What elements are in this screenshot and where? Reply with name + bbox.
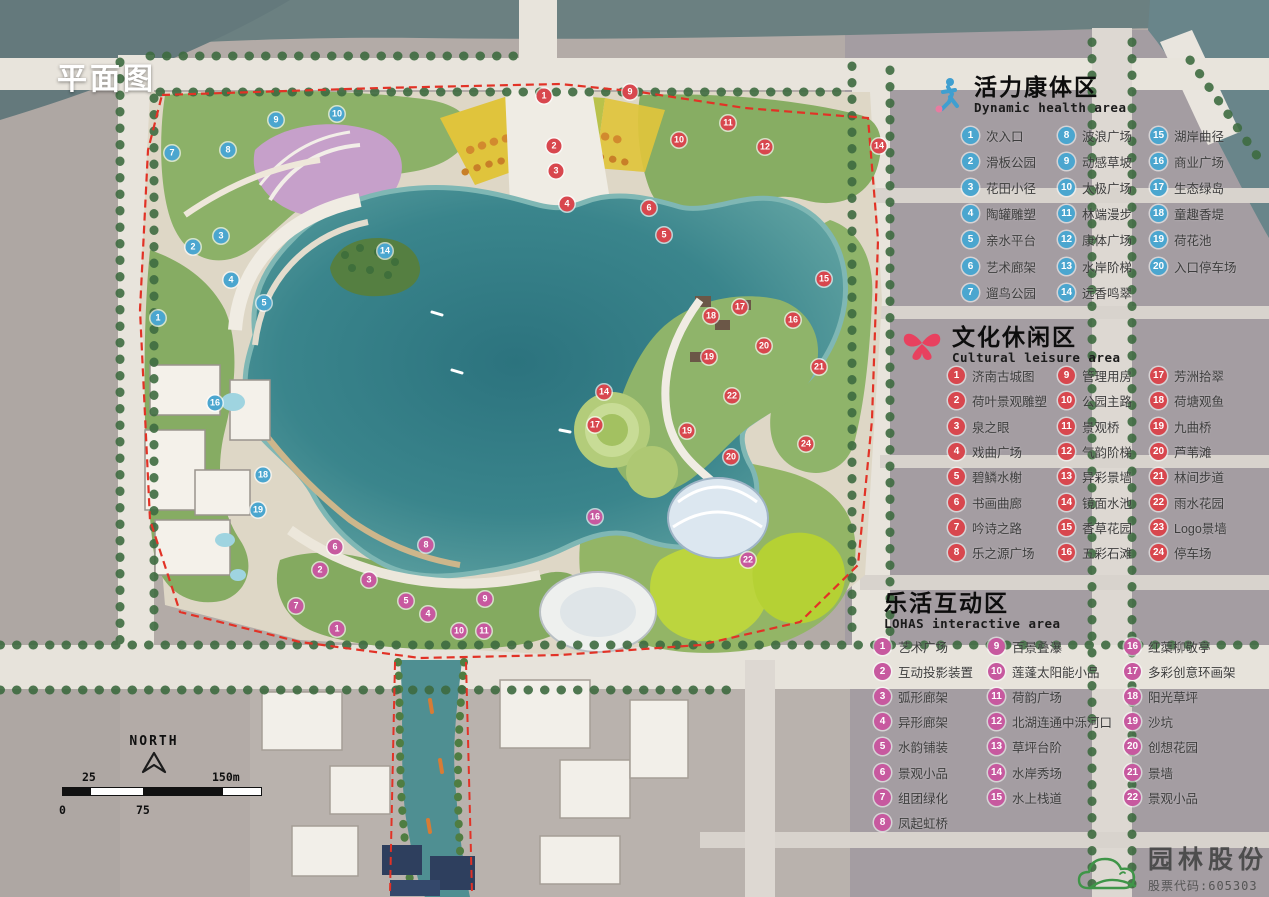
map-marker: 18 — [256, 468, 271, 483]
map-marker: 4 — [421, 607, 436, 622]
company-name: 园林股份 — [1148, 848, 1268, 873]
map-marker: 6 — [328, 540, 343, 555]
map-marker: 1 — [330, 622, 345, 637]
cloud-hill-logo-icon — [1076, 848, 1138, 894]
page-title: 平面图 — [57, 54, 156, 98]
south-vertical-street — [745, 660, 775, 897]
map-marker: 19 — [680, 424, 695, 439]
site-plan-map — [0, 0, 1269, 897]
terraced-lawn — [596, 414, 628, 446]
map-marker: 22 — [725, 389, 740, 404]
stadium-roof — [560, 587, 636, 637]
map-marker: 19 — [702, 350, 717, 365]
map-marker: 16 — [588, 510, 603, 525]
map-marker: 5 — [657, 228, 672, 243]
scale-label-150m: 150m — [212, 770, 240, 784]
map-marker: 9 — [623, 85, 638, 100]
map-marker: 11 — [477, 624, 492, 639]
map-marker: 12 — [758, 140, 773, 155]
company-logo: 园林股份 股票代码:605303 — [1076, 848, 1268, 894]
scale-bar: 25 150m 0 75 — [62, 770, 272, 820]
pool — [221, 393, 245, 411]
map-marker: 2 — [186, 240, 201, 255]
map-marker: 1 — [151, 311, 166, 326]
map-marker: 10 — [672, 133, 687, 148]
map-marker: 20 — [724, 450, 739, 465]
pool — [230, 569, 246, 581]
map-marker: 7 — [289, 599, 304, 614]
map-marker: 9 — [478, 592, 493, 607]
map-marker: 10 — [330, 107, 345, 122]
scale-label-0: 0 — [59, 803, 66, 817]
map-marker: 7 — [165, 146, 180, 161]
map-marker: 5 — [257, 296, 272, 311]
map-marker: 8 — [221, 143, 236, 158]
map-marker: 3 — [549, 164, 564, 179]
map-marker: 22 — [741, 553, 756, 568]
scale-label-75: 75 — [136, 803, 150, 817]
cross-street — [860, 575, 1269, 590]
master-plan-canvas: 平面图 活力康体区 Dynamic health area 1次入口2滑板公园3… — [0, 0, 1269, 897]
map-marker: 2 — [547, 139, 562, 154]
map-marker: 3 — [362, 573, 377, 588]
map-marker: 14 — [597, 385, 612, 400]
map-marker: 1 — [537, 89, 552, 104]
map-marker: 17 — [733, 300, 748, 315]
map-marker: 10 — [452, 624, 467, 639]
scale-label-25: 25 — [82, 770, 96, 784]
map-marker: 9 — [269, 113, 284, 128]
map-marker: 14 — [378, 244, 393, 259]
north-bridge-road — [519, 0, 557, 96]
map-marker: 11 — [721, 116, 736, 131]
map-marker: 21 — [812, 360, 827, 375]
map-marker: 16 — [208, 396, 223, 411]
map-marker: 19 — [251, 503, 266, 518]
map-marker: 5 — [399, 594, 414, 609]
map-marker: 18 — [704, 309, 719, 324]
north-label: NORTH — [124, 734, 184, 749]
scale-bar-segments — [62, 787, 262, 796]
cross-street — [860, 188, 1269, 203]
map-marker: 15 — [817, 272, 832, 287]
map-marker: 20 — [757, 339, 772, 354]
map-marker: 2 — [313, 563, 328, 578]
terraced-lawn — [626, 446, 678, 498]
map-marker: 8 — [419, 538, 434, 553]
map-marker: 16 — [786, 313, 801, 328]
cross-street — [880, 306, 1269, 319]
dome-building — [668, 478, 768, 558]
stock-ticker: 股票代码:605303 — [1148, 877, 1268, 894]
south-road — [0, 645, 1269, 689]
cross-street — [880, 455, 1269, 468]
map-marker: 17 — [588, 418, 603, 433]
map-marker: 3 — [214, 229, 229, 244]
map-marker: 4 — [224, 273, 239, 288]
map-marker: 14 — [872, 139, 887, 154]
map-marker: 4 — [560, 197, 575, 212]
map-marker: 6 — [642, 201, 657, 216]
map-marker: 24 — [799, 437, 814, 452]
pool — [215, 533, 235, 547]
